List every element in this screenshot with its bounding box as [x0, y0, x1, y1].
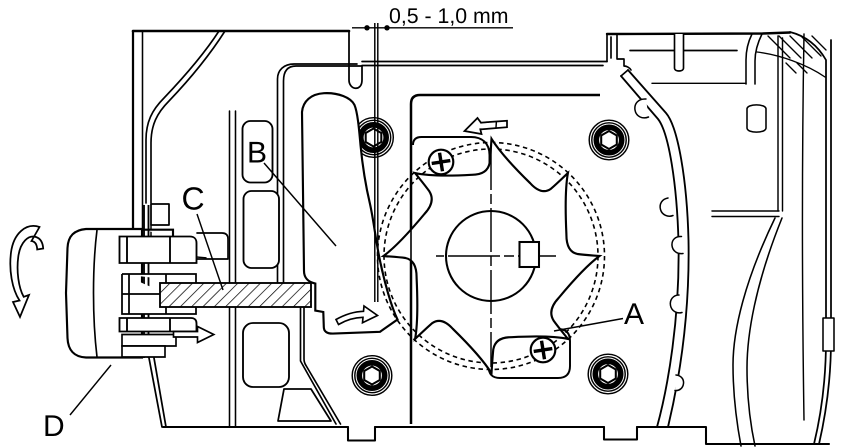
svg-text:D: D — [43, 410, 65, 443]
svg-text:0,5 - 1,0 mm: 0,5 - 1,0 mm — [389, 4, 509, 28]
svg-text:C: C — [182, 181, 205, 217]
svg-text:A: A — [624, 298, 644, 331]
svg-text:B: B — [247, 137, 267, 170]
